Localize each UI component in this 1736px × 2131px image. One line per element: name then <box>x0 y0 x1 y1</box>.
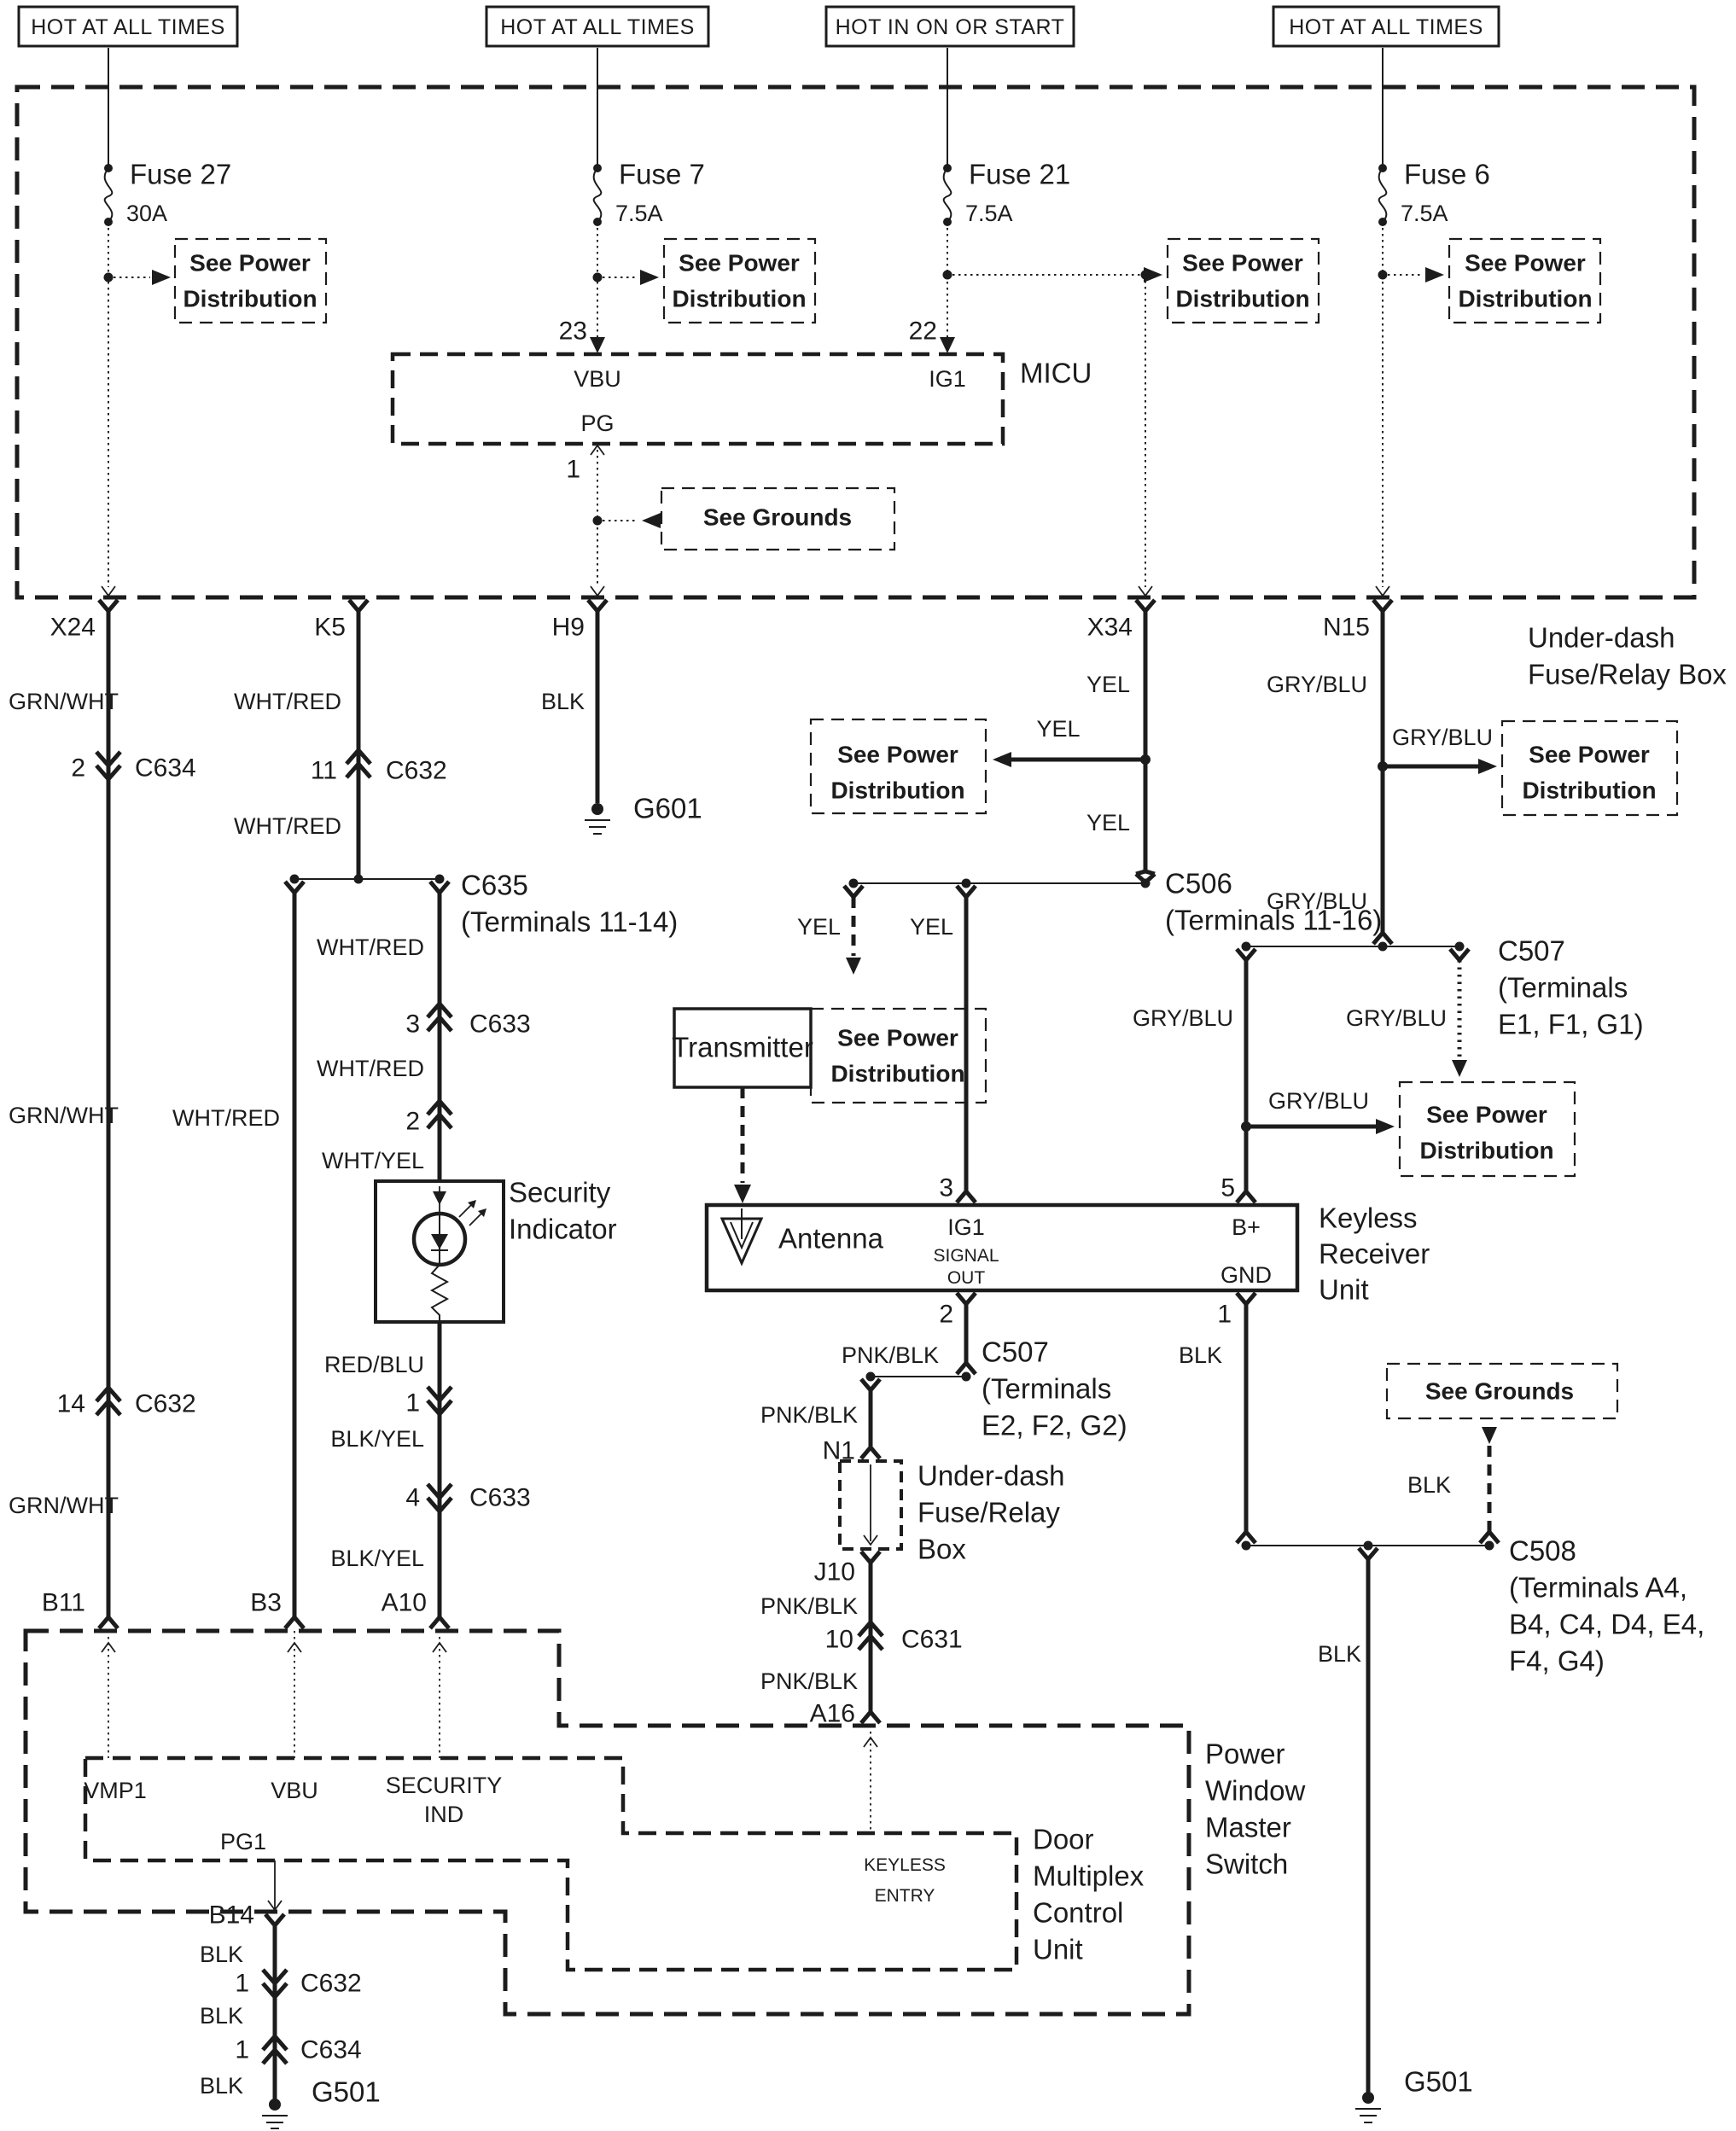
wire-blk-g501r: BLK <box>1318 1642 1361 1666</box>
wire-h9-g601 <box>585 610 610 834</box>
see-power-6b: Distribution <box>830 1061 964 1086</box>
conn-c508-b: (Terminals A4, <box>1509 1574 1687 1604</box>
dmcu-pg1: PG1 <box>220 1830 266 1854</box>
see-power-4b: Distribution <box>1458 286 1592 311</box>
see-power-8a: See Power <box>1426 1102 1547 1127</box>
fuse7-name: Fuse 7 <box>619 160 705 190</box>
conn-c633-pin4: 4 <box>405 1484 420 1511</box>
micu-ig1: IG1 <box>929 367 966 391</box>
see-power-1b: Distribution <box>183 286 317 311</box>
conn-c508-a: C508 <box>1509 1537 1576 1567</box>
see-power-7a: See Power <box>1529 742 1650 766</box>
conn-c635-terms: (Terminals 11-14) <box>461 908 678 938</box>
see-power-2b: Distribution <box>672 286 806 311</box>
conn-c635: C635 <box>461 871 528 901</box>
see-power-7b: Distribution <box>1522 777 1656 802</box>
see-power-3b: Distribution <box>1175 286 1309 311</box>
power-rail-2: HOT AT ALL TIMES <box>500 16 695 38</box>
conn-c507-e2-b: (Terminals <box>982 1375 1111 1405</box>
underdash-box2-2: Fuse/Relay <box>918 1499 1060 1528</box>
keyless-name-3: Unit <box>1319 1276 1369 1306</box>
pwms-name-2: Window <box>1205 1777 1305 1807</box>
conn-c633-a: C633 <box>469 1010 531 1038</box>
dmcu-entry: ENTRY <box>875 1887 935 1906</box>
conn-c634-b: C634 <box>300 2036 362 2064</box>
wire-grnwht-1: GRN/WHT <box>9 690 119 713</box>
keyless-gnd: GND <box>1220 1263 1272 1287</box>
wire-gryblu-1: GRY/BLU <box>1267 672 1367 696</box>
ground-g501-right: G501 <box>1404 2068 1473 2098</box>
keyless-bplus: B+ <box>1232 1215 1261 1239</box>
ground-path-right <box>1237 1304 1617 2122</box>
wire-whtred-5: WHT/RED <box>317 1057 424 1080</box>
wire-b3-branch <box>285 893 304 1628</box>
keyless-name-2: Receiver <box>1319 1240 1430 1270</box>
wire-blk-h9: BLK <box>541 690 585 713</box>
security-indicator-1: Security <box>509 1179 610 1208</box>
conn-c506: C506 <box>1165 870 1232 900</box>
wire-yel-4: YEL <box>797 915 841 939</box>
conn-c632-b: C632 <box>386 757 447 784</box>
conn-pin2: 2 <box>405 1108 420 1135</box>
wire-whtred-4: WHT/RED <box>317 935 424 959</box>
micu-pg: PG <box>580 411 614 435</box>
wire-k5-c635 <box>285 610 449 893</box>
dmcu-name-1: Door <box>1033 1825 1094 1855</box>
wire-gryblu-2: GRY/BLU <box>1392 725 1493 749</box>
pin-a10: A10 <box>382 1589 427 1616</box>
wire-gryblu-4: GRY/BLU <box>1133 1006 1233 1030</box>
see-grounds-2: See Grounds <box>1425 1378 1574 1403</box>
dmcu-name-2: Multiplex <box>1033 1862 1144 1892</box>
power-rail-3: HOT IN ON OR START <box>836 16 1065 38</box>
wire-blk-sg2: BLK <box>1407 1473 1451 1497</box>
wire-pnkblk-1: PNK/BLK <box>842 1343 939 1367</box>
pin-b11: B11 <box>42 1589 85 1616</box>
keyless-out: OUT <box>947 1269 985 1288</box>
fuse-21-symbol <box>940 48 1162 596</box>
fuse21-rating: 7.5A <box>965 201 1013 225</box>
conn-c507-e1-b: (Terminals <box>1498 974 1628 1004</box>
wire-x34-c506 <box>811 610 1155 1193</box>
micu-name: MICU <box>1020 359 1092 389</box>
micu-pin-22: 22 <box>909 317 937 345</box>
wire-whtred-2: WHT/RED <box>234 814 341 838</box>
pwms-name-3: Master <box>1205 1814 1291 1843</box>
wire-pnkblk-3: PNK/BLK <box>760 1594 858 1618</box>
pin-j10: J10 <box>814 1558 855 1586</box>
pin-5-keyless: 5 <box>1220 1174 1235 1202</box>
wire-blk-b2: BLK <box>200 2004 243 2028</box>
see-power-3a: See Power <box>1182 250 1303 275</box>
dmcu-name-4: Unit <box>1033 1936 1083 1965</box>
ground-g501-left: G501 <box>312 2078 381 2108</box>
conn-pin1: 1 <box>405 1389 420 1417</box>
conn-c507-e2-a: C507 <box>982 1338 1049 1368</box>
dmcu-keyless: KEYLESS <box>864 1856 946 1875</box>
conn-c632-pin1: 1 <box>235 1970 249 1997</box>
see-power-1a: See Power <box>189 250 311 275</box>
security-indicator-symbol <box>376 1181 504 1322</box>
see-power-distribution-boxes <box>175 239 1600 323</box>
dmcu-vmp1: VMP1 <box>84 1779 147 1802</box>
conn-c507-e2-c: E2, F2, G2) <box>982 1412 1127 1441</box>
pin-a16: A16 <box>810 1700 855 1727</box>
fusebox-bottom-pins <box>99 600 1392 611</box>
fuse-27-symbol <box>102 48 171 596</box>
see-power-5a: See Power <box>837 742 958 766</box>
wire-blk-b3: BLK <box>200 2074 243 2098</box>
transmitter-name: Transmitter <box>672 1033 813 1063</box>
conn-c633-pin3: 3 <box>405 1010 420 1038</box>
ground-g601: G601 <box>633 795 702 824</box>
wire-blk-b1: BLK <box>200 1942 243 1966</box>
conn-c633-b: C633 <box>469 1484 531 1511</box>
power-rail-1: HOT AT ALL TIMES <box>31 16 225 38</box>
dmcu-name-3: Control <box>1033 1899 1123 1929</box>
conn-c508-d: F4, G4) <box>1509 1647 1605 1677</box>
conn-c634: C634 <box>135 754 196 782</box>
see-power-6a: See Power <box>837 1025 958 1050</box>
see-power-8b: Distribution <box>1419 1138 1553 1162</box>
conn-c632-pin11: 11 <box>311 757 337 784</box>
see-power-2a: See Power <box>679 250 800 275</box>
micu-pin-1: 1 <box>566 456 580 483</box>
conn-c632-c: C632 <box>300 1970 362 1997</box>
wire-blkyel-1: BLK/YEL <box>330 1427 424 1451</box>
wire-grnwht-2: GRN/WHT <box>9 1103 119 1127</box>
pin-n15: N15 <box>1323 614 1370 641</box>
pwms-name-1: Power <box>1205 1740 1285 1770</box>
conn-c507-e1-c: E1, F1, G1) <box>1498 1010 1644 1040</box>
pin-1-keyless: 1 <box>1217 1301 1232 1328</box>
pin-x24: X24 <box>50 614 96 641</box>
conn-c507-e1-a: C507 <box>1498 937 1565 967</box>
dmcu-ind: IND <box>424 1802 464 1826</box>
antenna-name: Antenna <box>778 1225 883 1255</box>
micu-pin-23: 23 <box>559 317 587 345</box>
fuse6-name: Fuse 6 <box>1404 160 1490 190</box>
wire-pnkblk-2: PNK/BLK <box>760 1403 858 1427</box>
micu-vbu: VBU <box>574 367 621 391</box>
security-indicator-2: Indicator <box>509 1215 617 1245</box>
pin-x34: X34 <box>1087 614 1133 641</box>
conn-c632-pin14: 14 <box>57 1390 85 1418</box>
keyless-ig1: IG1 <box>947 1215 985 1239</box>
fuse-6-symbol <box>1376 48 1444 596</box>
dmcu-security: SECURITY <box>386 1773 503 1797</box>
wire-redblu: RED/BLU <box>324 1353 424 1377</box>
wire-whtred-1: WHT/RED <box>234 690 341 713</box>
power-rail-4: HOT AT ALL TIMES <box>1289 16 1483 38</box>
underdash-box-label-1: Under-dash <box>1528 624 1675 654</box>
fuse6-rating: 7.5A <box>1401 201 1448 225</box>
wire-pnkblk-4: PNK/BLK <box>760 1669 858 1693</box>
keyless-signal: SIGNAL <box>933 1247 999 1266</box>
wire-b14-g501 <box>262 1914 288 2128</box>
underdash-box-label-2: Fuse/Relay Box <box>1528 661 1727 690</box>
pin-k5: K5 <box>314 614 346 641</box>
wire-gryblu-3: GRY/BLU <box>1267 889 1367 913</box>
see-grounds-1: See Grounds <box>703 504 852 529</box>
conn-c634-pin1: 1 <box>235 2036 249 2064</box>
wire-gryblu-5: GRY/BLU <box>1346 1006 1447 1030</box>
antenna-icon <box>722 1208 761 1263</box>
wire-whtyel: WHT/YEL <box>322 1149 424 1173</box>
wire-grnwht-3: GRN/WHT <box>9 1493 119 1517</box>
fuse7-rating: 7.5A <box>615 201 663 225</box>
underdash-box2-3: Box <box>918 1535 966 1565</box>
fuse27-rating: 30A <box>126 201 167 225</box>
conn-c631: C631 <box>901 1626 963 1653</box>
pin-b3: B3 <box>250 1589 282 1616</box>
pin-h9: H9 <box>552 614 585 641</box>
pwms-name-4: Switch <box>1205 1850 1288 1880</box>
conn-c632-a: C632 <box>135 1390 196 1418</box>
wire-blkyel-2: BLK/YEL <box>330 1546 424 1570</box>
fuse21-name: Fuse 21 <box>969 160 1070 190</box>
wire-blk-gnd: BLK <box>1179 1343 1222 1367</box>
wire-yel-1: YEL <box>1086 672 1130 696</box>
keyless-name-1: Keyless <box>1319 1204 1418 1234</box>
wire-gryblu-6: GRY/BLU <box>1268 1089 1369 1113</box>
wire-yel-5: YEL <box>910 915 953 939</box>
micu-box <box>393 354 1003 596</box>
pin-b14: B14 <box>209 1901 254 1929</box>
see-power-5b: Distribution <box>830 777 964 802</box>
pin-3-keyless: 3 <box>939 1174 953 1202</box>
wiring-diagram-page: HOT AT ALL TIMESHOT AT ALL TIMESHOT IN O… <box>0 0 1736 2131</box>
conn-c634-pin2: 2 <box>71 754 85 782</box>
fuse27-name: Fuse 27 <box>130 160 231 190</box>
underdash-box2-1: Under-dash <box>918 1462 1064 1492</box>
wire-whtred-3: WHT/RED <box>172 1106 280 1130</box>
dmcu-vbu: VBU <box>271 1779 318 1802</box>
wire-yel-3: YEL <box>1086 811 1130 835</box>
conn-c631-pin10: 10 <box>825 1626 853 1653</box>
pin-n1: N1 <box>823 1437 855 1464</box>
see-power-4a: See Power <box>1465 250 1586 275</box>
pin-2-keyless: 2 <box>939 1301 953 1328</box>
power-rail-header-boxes <box>19 7 1499 46</box>
conn-c508-c: B4, C4, D4, E4, <box>1509 1610 1704 1640</box>
wire-yel-2: YEL <box>1036 717 1080 741</box>
